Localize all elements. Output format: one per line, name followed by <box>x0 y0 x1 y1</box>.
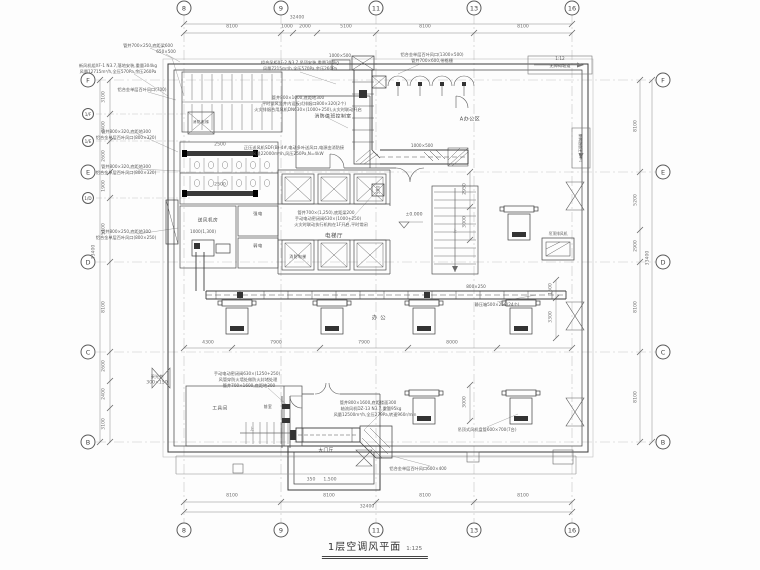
annotation-text: 800×250 <box>466 285 486 289</box>
dimension-text: 8100 <box>226 26 238 31</box>
dimension-text: 8100 <box>323 495 335 500</box>
grid-bubble-bottom-9: 9 <box>274 523 289 538</box>
grid-bubble-top-13: 13 <box>467 1 482 16</box>
dimension-text: 8100 <box>635 120 640 132</box>
dimension-text: 2900 <box>635 240 640 252</box>
dimension-text: 32400 <box>290 17 305 22</box>
dimension-text: 7900 <box>358 342 370 347</box>
annotation-text: 风量12500m³/h,全压279Pa,转速960r/min <box>334 413 417 417</box>
annotation-text: 手动电动密闭阀630×(1000+250) <box>295 217 361 221</box>
dimension-text: 3100 <box>103 91 108 103</box>
room-elevator-hall: 电梯厅 <box>325 234 343 240</box>
annotation-text: 火灾排烟合用风机DN630×(1000+250),火灾时联动开启 <box>254 108 361 112</box>
grid-bubble-left-F: F <box>81 73 96 88</box>
annotation-text: 管井700×(1,250),底距梁200 <box>297 211 354 215</box>
dimension-text: 3000 <box>464 216 469 228</box>
annotation-text: 上 <box>250 427 254 431</box>
annotation-text: 上 <box>453 229 457 233</box>
dimension-text: 8100 <box>635 301 640 313</box>
grid-bubble-left-1-E: 1/E <box>82 135 94 147</box>
dimension-text: 8100 <box>226 495 238 500</box>
room-supply-fan: 送风机房 <box>198 220 218 225</box>
annotation-text: 铝合金单层百叶风口(700) <box>118 88 167 92</box>
dimension-text: 5200 <box>635 194 640 206</box>
annotation-text: 1000×500 <box>329 54 351 58</box>
annotation-text: 管井800×250,底距地300 <box>101 230 151 234</box>
room-strong-elec: 强电 <box>253 212 262 216</box>
dimension-text: 1000 <box>281 26 293 31</box>
dimension-text: 2600 <box>103 360 108 372</box>
grid-bubble-right-C: C <box>656 345 671 360</box>
dimension-text: 3300 <box>550 311 555 323</box>
dimension-text: 33400 <box>647 251 652 266</box>
annotation-text: 无障碍坡道 <box>550 64 571 68</box>
annotation-text: 静压箱500×250(24个) <box>475 303 520 307</box>
grid-bubble-bottom-16: 16 <box>565 523 580 538</box>
grid-bubble-left-1-F: 1/F <box>82 108 94 120</box>
dimension-text: 300×150 <box>146 382 167 387</box>
annotation-text: 管井700×600,带格栅 <box>411 59 453 63</box>
annotation-text: 管井700×1600,底距地300 <box>223 384 275 388</box>
grid-bubble-top-16: 16 <box>565 1 580 16</box>
dimension-text: 8100 <box>517 495 529 500</box>
room-weak-elec: 弱电 <box>253 244 262 248</box>
annotation-text: 火灾时联动执行机构在1F开启,平时常闭 <box>294 223 367 227</box>
annotation-text: 吊顶排风机 <box>549 232 568 236</box>
annotation-text: 1000×500 <box>411 144 433 148</box>
dimension-text: 5100 <box>340 26 352 31</box>
dimension-text: 32400 <box>360 506 375 511</box>
room-fire-elevator-2: 消防电梯 <box>193 121 209 125</box>
annotation-text: 吊顶式风机盘管600×700(7台) <box>458 428 517 432</box>
grid-bubble-left-E: E <box>81 165 96 180</box>
dimension-text: 3100 <box>103 418 108 430</box>
grid-bubble-top-11: 11 <box>369 1 384 16</box>
grid-bubble-left-C: C <box>81 345 96 360</box>
annotation-text: 风量7215m³/h,全压570Pa,余压260Pa <box>263 67 337 71</box>
title-block: 1层空调风平面1:125 <box>322 535 428 559</box>
annotation-text: 铝合金单层百叶风口(1300×500) <box>400 53 463 57</box>
room-office: 办 公 <box>372 316 386 322</box>
annotation-text: 管井800×320,底距地300 <box>101 130 151 134</box>
dimension-text: 7900 <box>270 342 282 347</box>
grid-bubble-right-B: B <box>656 435 671 450</box>
dimension-text: 2000 <box>299 26 311 31</box>
dimension-text: 1,500 <box>323 479 336 484</box>
annotation-text: 管井700×250,底距梁600 <box>123 44 173 48</box>
dimension-text: 4300 <box>202 342 214 347</box>
annotation-text: 管井800×1000,底距地300 <box>272 96 324 100</box>
annotation-text: 正压送风机SDF(B)-4#,电动多叶送风口,电源由消防接 <box>244 146 344 150</box>
room-fire-elevator: 消防电梯 <box>289 255 306 259</box>
annotation-text: 轴流风机DZ-13 N3.7,重量95kg <box>341 407 402 411</box>
grid-bubble-right-D: D <box>656 255 671 270</box>
annotation-text: 铝合金单层百叶风口(800×250) <box>96 236 156 240</box>
dimension-text: 2500 <box>214 144 226 149</box>
dimension-text: 8100 <box>103 301 108 313</box>
annotation-text: 1:12 无障碍坡道 <box>579 134 583 163</box>
room-fire-duty: 消防值班控制室 <box>314 116 351 121</box>
annotation-text: 铝合金单层百叶风口600×400 <box>389 467 446 471</box>
drawing-scale: 1:125 <box>406 546 422 552</box>
dimension-text: 2950 <box>464 183 469 195</box>
dimension-text: 1900 <box>103 180 108 192</box>
annotation-text: 管井800×320,底距地300 <box>101 165 151 169</box>
dimension-text: 8100 <box>419 26 431 31</box>
dimension-text: 8100 <box>635 391 640 403</box>
grid-bubble-left-B: B <box>81 435 96 450</box>
dimension-text: 2400 <box>103 388 108 400</box>
grid-bubble-bottom-8: 8 <box>177 523 192 538</box>
room-antechamber: 前室 <box>264 405 273 409</box>
dimension-text: 2500 <box>214 184 226 189</box>
room-tools: 工具间 <box>212 408 227 413</box>
dimension-text: 8100 <box>517 26 529 31</box>
dimension-text: 2600 <box>103 150 108 162</box>
dimension-text: 33400 <box>93 245 98 260</box>
dimension-text: 8100 <box>419 495 431 500</box>
annotation-text: 新风机组XF-1 N3.7,落地安装,重量304kg <box>79 64 157 68</box>
dimension-text: 500 <box>378 186 383 195</box>
drawing-title: 1层空调风平面 <box>328 542 401 553</box>
grid-bubble-top-9: 9 <box>274 1 289 16</box>
annotation-text: 1:12 <box>555 57 564 61</box>
dimension-text: 3000 <box>464 396 469 408</box>
labels-layer: 8911131689111316F1/F1/EE1/DDCBFEDCB32400… <box>0 0 760 570</box>
grid-bubble-right-F: F <box>656 73 671 88</box>
annotation-text: 管井800×1600,底距楼面300 <box>340 401 397 405</box>
annotation-text: 平时排风竖井内设板式排烟口800×320(2个) <box>262 102 346 106</box>
annotation-text: 风管穿防火墙处做防火封堵处理 <box>219 378 278 382</box>
grid-bubble-left-1-D: 1/D <box>82 192 94 204</box>
grid-bubble-right-E: E <box>656 165 671 180</box>
annotation-text: 650×500 <box>156 50 176 54</box>
grid-bubble-top-8: 8 <box>177 1 192 16</box>
floor-plan-sheet: 8911131689111316F1/F1/EE1/DDCBFEDCB32400… <box>0 0 760 570</box>
dimension-text: 1500 <box>550 283 555 295</box>
grid-bubble-bottom-13: 13 <box>467 523 482 538</box>
annotation-text: ±0.000 <box>405 214 422 219</box>
annotation-text: 铝合金单层百叶风口(800×320) <box>96 136 156 140</box>
annotation-text: 1000(1,300) <box>190 230 216 234</box>
room-office-zone: A办公区 <box>460 118 480 123</box>
annotation-text: 风量22000m³/h,风压250Pa,N=4kW <box>252 152 323 156</box>
annotation-text: 铝合金单层百叶风口(800×320) <box>96 171 156 175</box>
dimension-text: 8000 <box>446 342 458 347</box>
annotation-text: 采光井 <box>151 375 164 379</box>
room-main-lobby: 大门厅 <box>318 450 333 455</box>
annotation-text: 风量12715m³/h,全压570Pa,余压260Pa <box>80 70 157 74</box>
dimension-text: 350 <box>307 479 316 484</box>
annotation-text: 组合风柜XF-2 N3.7,吊顶安装,重量304kg <box>261 61 339 65</box>
annotation-text: 手动电动密闭阀630×(1250+250) <box>214 372 280 376</box>
